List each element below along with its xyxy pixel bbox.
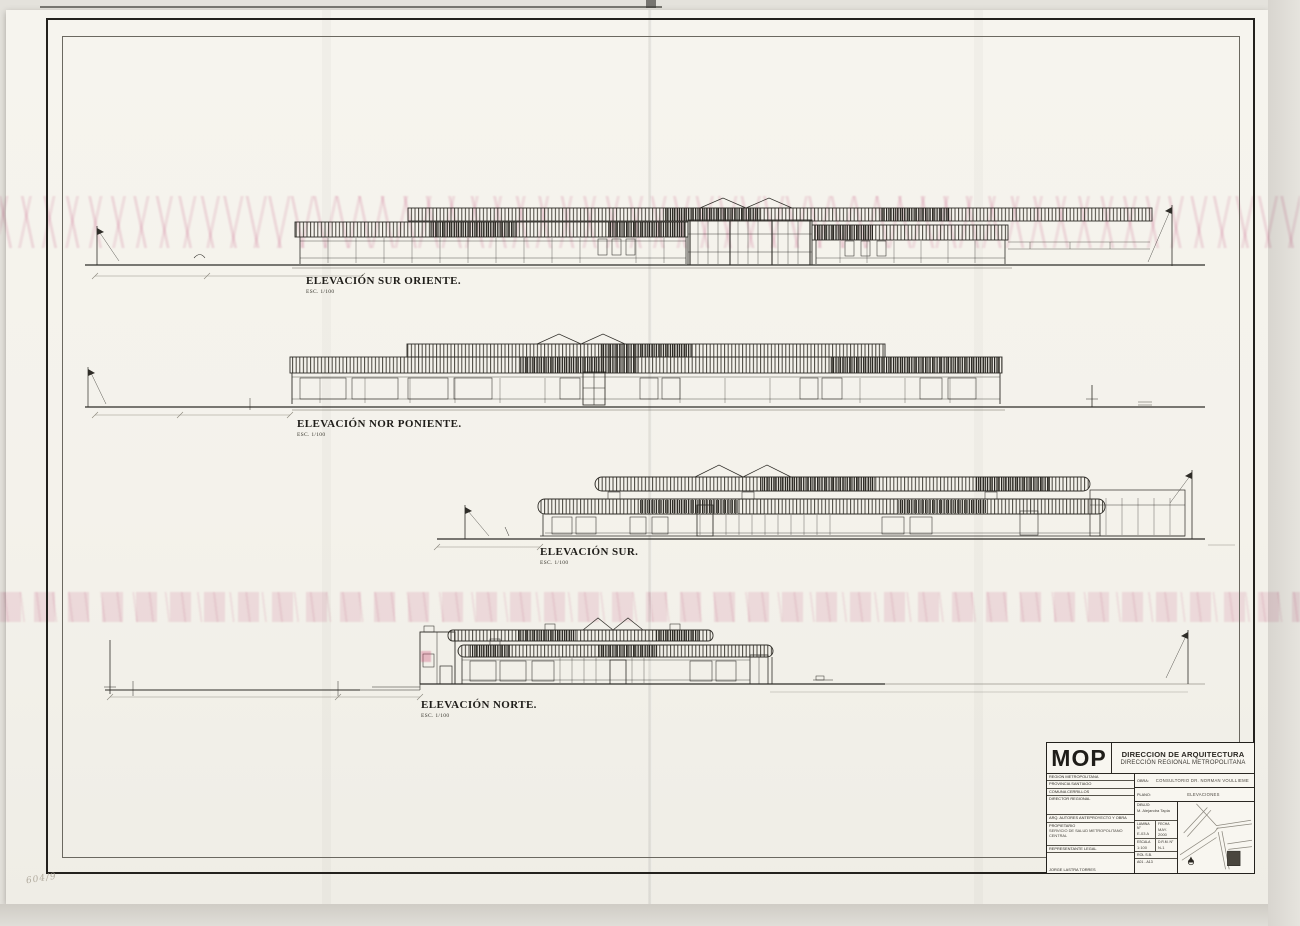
location-map-sketch [1178, 802, 1254, 873]
title-block-header: MOP DIRECCION DE ARQUITECTURA DIRECCIÓN … [1047, 743, 1254, 774]
elevation-title: ELEVACIÓN SUR ORIENTE. [306, 275, 461, 287]
dibujo-value: M. Alejandra Tapia [1137, 808, 1175, 813]
propietario-label: PROPIETARIO [1049, 823, 1075, 828]
elevation-scale: ESC. 1/100 [297, 432, 462, 438]
agency-name: DIRECCION DE ARQUITECTURA DIRECCIÓN REGI… [1112, 743, 1254, 773]
elevation-scale: ESC. 1/100 [421, 713, 537, 719]
drm-label: D.R.M. N° [1158, 840, 1175, 844]
fecha-label: FECHA [1158, 822, 1175, 826]
elevation-scale: ESC. 1/100 [306, 289, 461, 295]
lamina-label: LAMINA N° [1137, 822, 1153, 830]
rol-value: A01 - A13 [1135, 859, 1177, 865]
label-elevacion-sur: ELEVACIÓN SUR. ESC. 1/100 [540, 546, 638, 566]
agency-line1: DIRECCION DE ARQUITECTURA [1122, 750, 1245, 759]
title-block-data-column: DIBUJO: M. Alejandra Tapia LAMINA N° E-0… [1135, 802, 1178, 873]
field-obra: OBRA: CONSULTORIO DR. NORMAN VOULLIEME [1135, 774, 1254, 788]
field-escala-drm: ESCALA 1:100 D.R.M. N° N-1 [1135, 839, 1177, 852]
field-arquitectos: ARQ. AUTORES ANTEPROYECTO Y OBRA [1047, 815, 1134, 822]
field-director-regional: DIRECTOR REGIONAL [1047, 796, 1134, 815]
elevation-norte-drawing [104, 618, 1205, 700]
elevation-nor-poniente-drawing [85, 334, 1205, 418]
ink-bleed-spot [421, 651, 431, 662]
elevation-sur-drawing [434, 465, 1235, 550]
representante-value: JORGE LASTRA TORRES [1047, 853, 1134, 873]
label-elevacion-sur-oriente: ELEVACIÓN SUR ORIENTE. ESC. 1/100 [306, 275, 461, 295]
escala-label: ESCALA [1137, 840, 1153, 844]
propietario-value: SERVICIO DE SALUD METROPOLITANO CENTRAL [1049, 829, 1132, 838]
field-plano: PLANO: ELEVACIONES [1135, 788, 1254, 802]
title-block-left-column: REGION METROPOLITANA PROVINCIA SANTIAGO … [1047, 774, 1135, 873]
label-elevacion-nor-poniente: ELEVACIÓN NOR PONIENTE. ESC. 1/100 [297, 418, 462, 438]
agency-line2: DIRECCIÓN REGIONAL METROPOLITANA [1120, 760, 1245, 766]
field-comuna: COMUNA CERRILLOS [1047, 789, 1134, 796]
title-block: MOP DIRECCION DE ARQUITECTURA DIRECCIÓN … [1046, 742, 1255, 874]
elevation-title: ELEVACIÓN NORTE. [421, 699, 537, 711]
elevation-sur-oriente-drawing [85, 198, 1205, 279]
field-representante-legal: REPRESENTANTE LEGAL [1047, 846, 1134, 853]
mop-logo: MOP [1047, 743, 1112, 773]
location-map [1178, 802, 1254, 873]
field-rol: ROL S.B. [1135, 852, 1177, 859]
fecha-value: MAY. 2000 [1158, 827, 1175, 837]
dibujo-label: DIBUJO: [1137, 803, 1175, 807]
drm-value: N-1 [1158, 845, 1175, 850]
plano-label: PLANO: [1135, 793, 1153, 797]
field-propietario: PROPIETARIO SERVICIO DE SALUD METROPOLIT… [1047, 823, 1134, 846]
field-region: REGION METROPOLITANA [1047, 774, 1134, 781]
escala-value: 1:100 [1137, 845, 1153, 850]
field-lamina-fecha: LAMINA N° E-03 A FECHA MAY. 2000 [1135, 821, 1177, 839]
label-elevacion-norte: ELEVACIÓN NORTE. ESC. 1/100 [421, 699, 537, 719]
plano-value: ELEVACIONES [1153, 792, 1254, 797]
obra-label: OBRA: [1135, 779, 1151, 783]
lamina-value: E-03 A [1137, 831, 1153, 836]
elevation-title: ELEVACIÓN SUR. [540, 546, 638, 558]
field-provincia: PROVINCIA SANTIAGO [1047, 781, 1134, 788]
obra-value: CONSULTORIO DR. NORMAN VOULLIEME [1151, 778, 1254, 783]
elevation-scale: ESC. 1/100 [540, 560, 638, 566]
elevation-title: ELEVACIÓN NOR PONIENTE. [297, 418, 462, 430]
field-dibujo: DIBUJO: M. Alejandra Tapia [1135, 802, 1177, 821]
